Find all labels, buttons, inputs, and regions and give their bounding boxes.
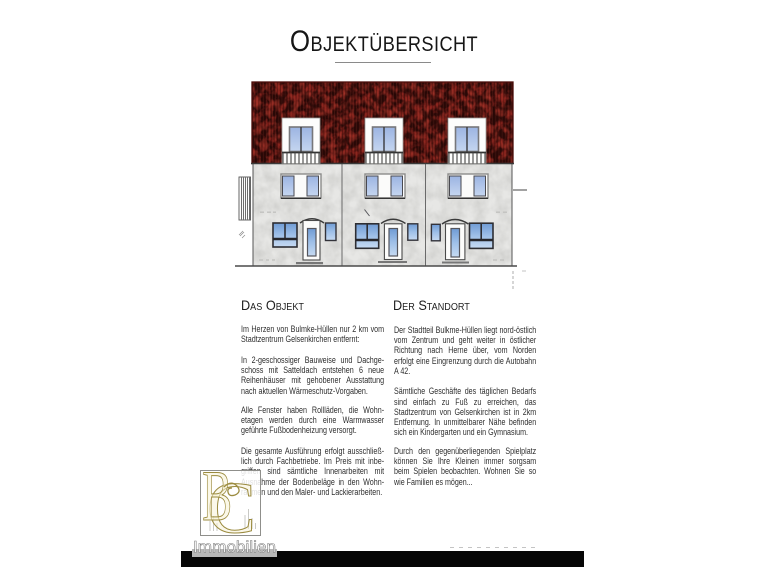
svg-text:B: B (202, 465, 232, 536)
svg-text:Immobilien: Immobilien (193, 539, 276, 557)
